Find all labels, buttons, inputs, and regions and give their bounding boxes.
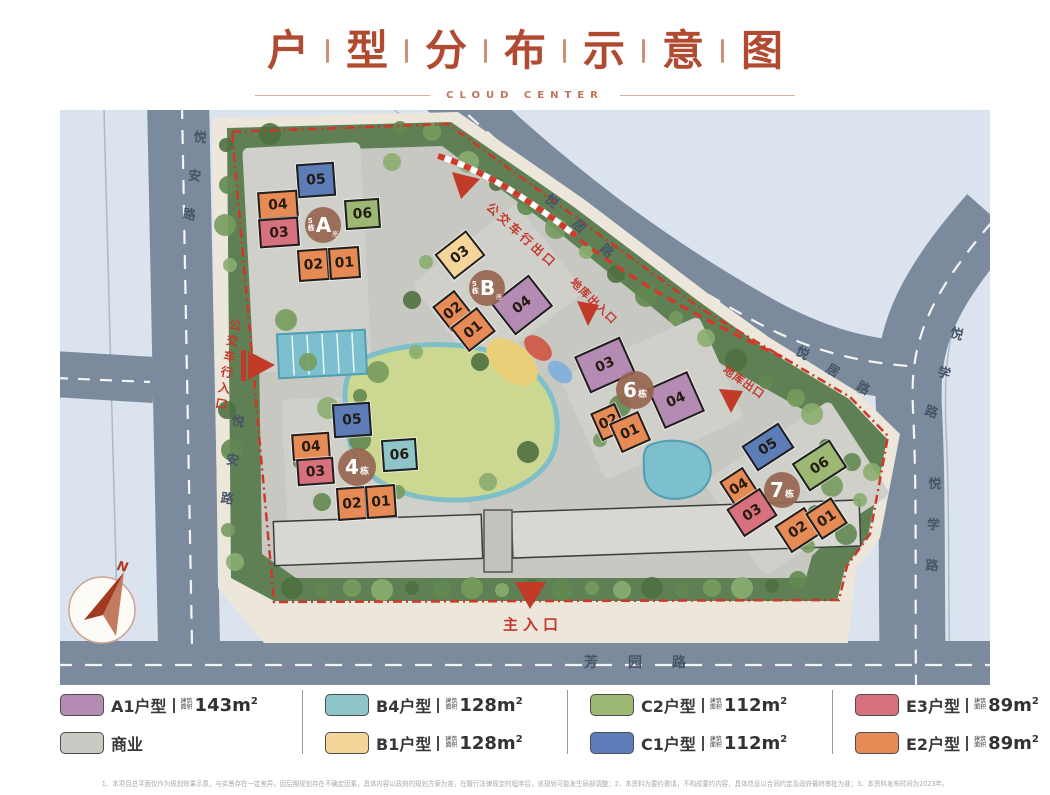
legend-separator	[702, 698, 704, 713]
title-separator	[405, 39, 408, 63]
disclaimer-text: 1、本项目总平面仅作为规划效果示意，与实景存在一定差异，因后期规划存在不确定因素…	[102, 779, 949, 789]
title-separator	[484, 39, 487, 63]
legend-swatch-a1	[60, 694, 104, 716]
legend-separator	[702, 736, 704, 751]
building-4-unit-03: 03	[296, 456, 335, 486]
building-label-suffix: 栋	[360, 464, 369, 477]
building-label-main: B	[480, 278, 495, 298]
entrance-label-main-entrance: 主入口	[503, 614, 563, 635]
legend-area-value: 143m2	[195, 695, 258, 716]
legend-label: B4户型	[376, 693, 431, 717]
building-label-suffix: 座	[496, 292, 502, 301]
legend-area-caption: 建筑面积	[974, 699, 986, 712]
building-label-suffix: 栋	[638, 387, 647, 400]
building-label-main: 7	[770, 480, 784, 500]
legend-area-value: 112m2	[724, 733, 787, 754]
bus-entrance-bar	[241, 350, 246, 381]
legend-separator	[173, 698, 175, 713]
east-pool	[644, 441, 711, 499]
legend-swatch-b1	[325, 732, 369, 754]
building-5a-unit-06: 06	[343, 198, 380, 230]
legend-swatch-c1	[590, 732, 634, 754]
legend-divider	[567, 690, 568, 754]
site-plan-map: 悦安路悦安路悦居路悦居路悦学路悦学路芳园路公交车行出口地库出入口地库出口公交车行…	[60, 110, 990, 685]
building-label-suffix: 栋	[785, 487, 794, 500]
title-char: 布	[504, 30, 546, 72]
legend-area-caption: 建筑面积	[445, 699, 457, 712]
title-separator	[642, 39, 645, 63]
legend-item-c1: C1户型建筑面积112m2	[590, 730, 787, 756]
legend-swatch-e3	[855, 694, 899, 716]
building-label-prefix: 5栋	[472, 281, 479, 295]
building-4-unit-05: 05	[332, 402, 372, 439]
legend-label: E2户型	[906, 731, 960, 755]
title-char: 意	[662, 30, 704, 72]
building-5a-unit-03: 03	[258, 216, 300, 248]
legend-area-value: 112m2	[724, 695, 787, 716]
legend-item-b1: B1户型建筑面积128m2	[325, 730, 523, 756]
building-4-label: 4栋	[338, 448, 376, 486]
page-title: 户型分布示意图	[0, 30, 1050, 72]
legend-area-value: 128m2	[459, 695, 522, 716]
swimming-pool	[277, 330, 367, 379]
building-label-main: 4	[345, 457, 359, 477]
legend-item-com: 商业	[60, 730, 143, 756]
legend-area-caption: 建筑面积	[181, 699, 193, 712]
building-7-label: 7栋	[764, 472, 800, 508]
legend-area-caption: 建筑面积	[974, 737, 986, 750]
title-char: 分	[425, 30, 467, 72]
road-label-fangyuan-road: 芳园路	[584, 652, 716, 672]
legend-swatch-com	[60, 732, 104, 754]
legend-swatch-e2	[855, 732, 899, 754]
legend-swatch-c2	[590, 694, 634, 716]
legend-divider	[302, 690, 303, 754]
page-subtitle: CLOUD CENTER	[0, 90, 1050, 101]
legend-label: C1户型	[641, 731, 696, 755]
building-label-main: A	[316, 215, 331, 235]
title-separator	[326, 39, 329, 63]
legend-item-a1: A1户型建筑面积143m2	[60, 692, 258, 718]
building-4-unit-06: 06	[380, 438, 417, 472]
building-5b-label: 5栋B座	[469, 270, 505, 306]
subtitle-text: CLOUD CENTER	[446, 90, 604, 101]
legend-area-caption: 建筑面积	[710, 699, 722, 712]
building-5a-unit-04: 04	[257, 190, 299, 221]
subtitle-line-left	[255, 95, 430, 96]
legend-area-caption: 建筑面积	[445, 737, 457, 750]
legend-area-value: 89m2	[988, 695, 1039, 716]
building-5a-label: 5栋A座	[305, 207, 341, 243]
building-5a-unit-05: 05	[296, 162, 336, 199]
legend-separator	[966, 698, 968, 713]
site-plan-graphic	[60, 110, 990, 685]
building-4-unit-02: 02	[336, 485, 368, 520]
legend-label: 商业	[111, 731, 143, 755]
building-5a-unit-02: 02	[296, 248, 329, 282]
title-char: 户	[267, 30, 309, 72]
building-label-suffix: 座	[332, 229, 338, 238]
title-char: 型	[346, 30, 388, 72]
title-separator	[563, 39, 566, 63]
legend-label: E3户型	[906, 693, 960, 717]
legend-swatch-b4	[325, 694, 369, 716]
page: 户型分布示意图 CLOUD CENTER	[0, 0, 1050, 795]
legend-label: B1户型	[376, 731, 431, 755]
subtitle-line-right	[620, 95, 795, 96]
disclaimer: 1、本项目总平面仅作为规划效果示意，与实景存在一定差异，因后期规划存在不确定因素…	[0, 771, 1050, 790]
building-label-main: 6	[623, 380, 637, 400]
building-6-label: 6栋	[616, 371, 654, 409]
legend-item-b4: B4户型建筑面积128m2	[325, 692, 523, 718]
legend-area-value: 128m2	[459, 733, 522, 754]
legend-divider	[832, 690, 833, 754]
building-label-prefix: 5栋	[308, 218, 315, 232]
legend-separator	[966, 736, 968, 751]
title-separator	[721, 39, 724, 63]
legend-separator	[437, 698, 439, 713]
legend-item-e2: E2户型建筑面积89m2	[855, 730, 1039, 756]
legend-label: A1户型	[111, 693, 167, 717]
legend-item-c2: C2户型建筑面积112m2	[590, 692, 787, 718]
legend-area-caption: 建筑面积	[710, 737, 722, 750]
title-char: 图	[741, 30, 783, 72]
legend-separator	[437, 736, 439, 751]
building-4-unit-01: 01	[365, 483, 397, 518]
title-char: 示	[583, 30, 625, 72]
legend-area-value: 89m2	[988, 733, 1039, 754]
legend-label: C2户型	[641, 693, 696, 717]
building-5a-unit-01: 01	[327, 246, 360, 280]
legend-item-e3: E3户型建筑面积89m2	[855, 692, 1039, 718]
